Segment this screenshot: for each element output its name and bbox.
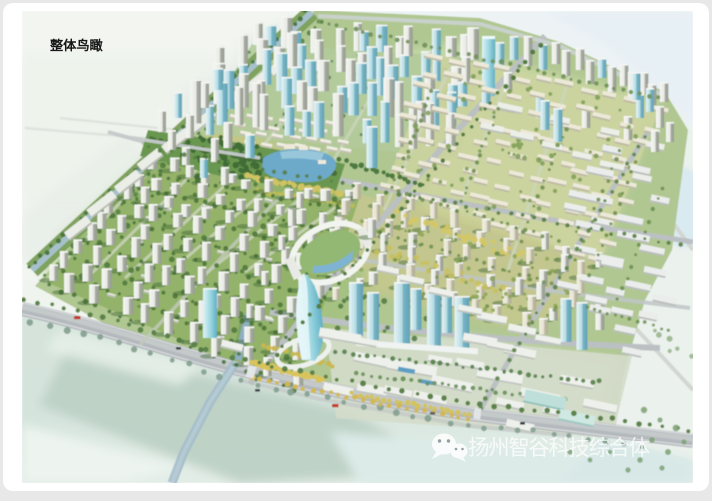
svg-text:整体鸟瞰: 整体鸟瞰 (50, 37, 104, 53)
svg-text:扬州智谷科技综合体: 扬州智谷科技综合体 (468, 436, 650, 460)
